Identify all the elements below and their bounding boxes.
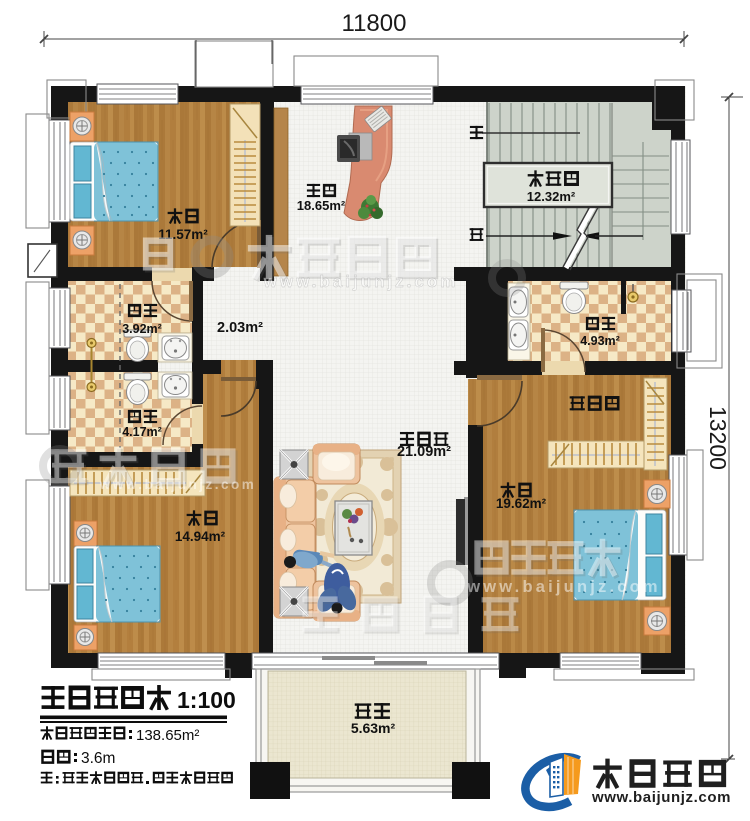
svg-text:3.6m: 3.6m [81,750,115,767]
svg-text:www.baijunjz.com: www.baijunjz.com [591,789,731,806]
svg-text:14.94m²: 14.94m² [175,529,226,544]
svg-text:www.baijunjz.com: www.baijunjz.com [99,477,257,492]
svg-text:18.65m²: 18.65m² [297,198,346,213]
svg-text:138.65m²: 138.65m² [136,727,199,744]
svg-text:4.17m²: 4.17m² [122,425,162,439]
svg-text:2.03m²: 2.03m² [217,320,263,336]
svg-text:1:100: 1:100 [177,687,236,713]
svg-text:13200: 13200 [705,406,731,470]
svg-text:11800: 11800 [342,10,407,37]
svg-text:5.63m²: 5.63m² [351,720,396,736]
svg-text:www.baijunjz.com: www.baijunjz.com [466,578,661,596]
svg-text:21.09m²: 21.09m² [397,444,451,460]
svg-text:12.32m²: 12.32m² [527,189,576,204]
svg-text:www.baijunjz.com: www.baijunjz.com [263,272,459,291]
svg-text:4.93m²: 4.93m² [580,334,620,348]
svg-text:19.62m²: 19.62m² [496,496,547,511]
svg-text:3.92m²: 3.92m² [122,322,162,336]
